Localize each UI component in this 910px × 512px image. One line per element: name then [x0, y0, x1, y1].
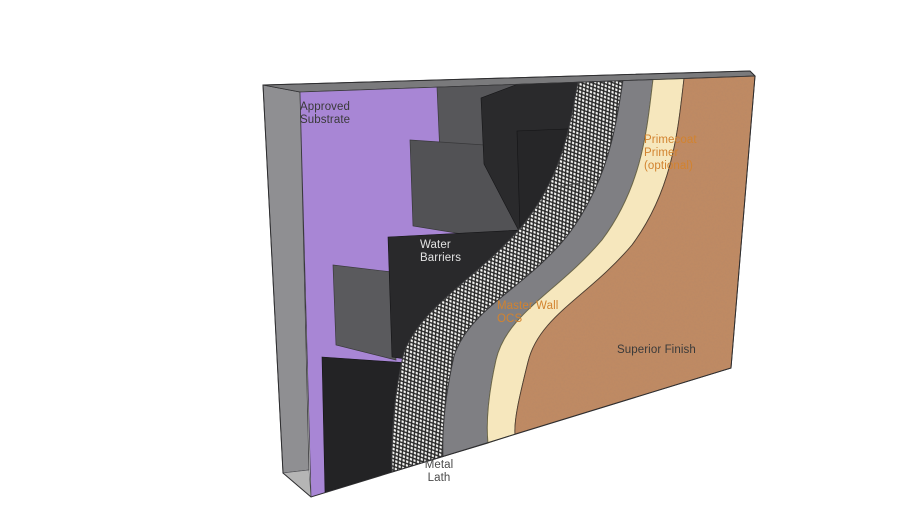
wall-section-canvas [0, 0, 910, 512]
wall-section-diagram: Approved Substrate Water Barriers Master… [0, 0, 910, 512]
layer-barrier-gray-3 [333, 265, 396, 360]
